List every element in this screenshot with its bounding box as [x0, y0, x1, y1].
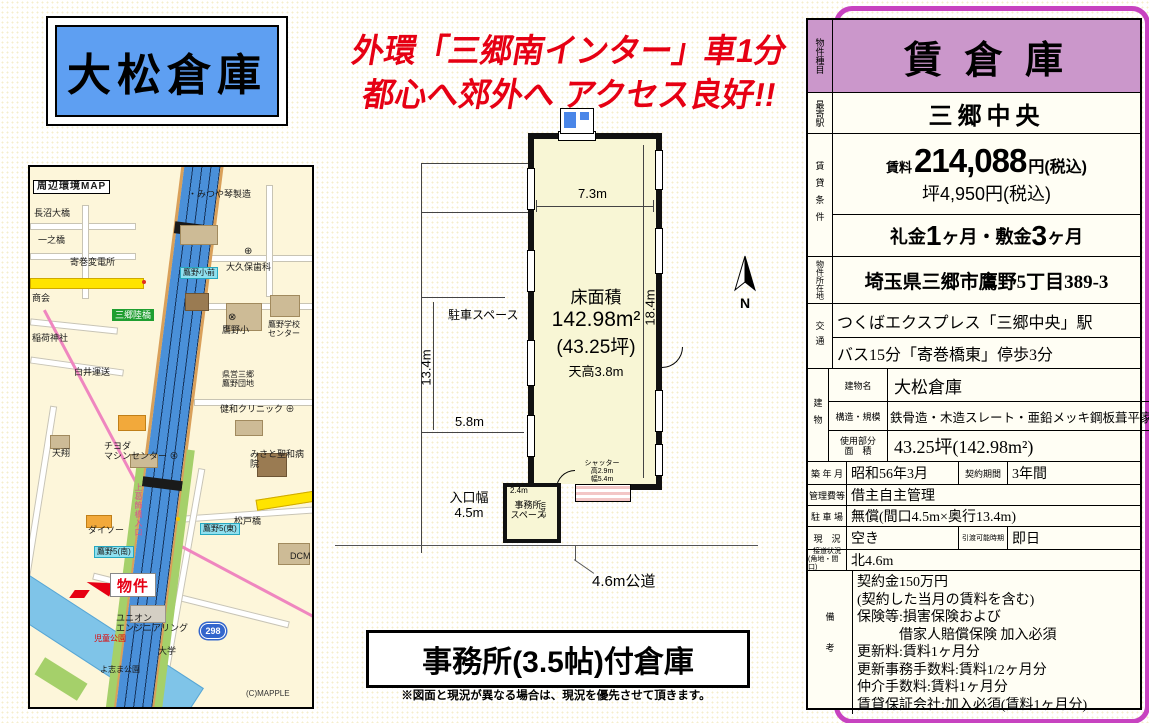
page-title: 大松倉庫 — [67, 39, 267, 103]
site-line — [421, 297, 505, 298]
row-parking: 駐 車 場 無償(間口4.5m×奥行13.4m) — [808, 506, 1140, 527]
rent-amount: 214,088 — [914, 142, 1026, 180]
type-label: 物件種目 — [814, 38, 827, 74]
fixture-blue — [580, 112, 589, 120]
map-label: 児童公園 — [94, 634, 126, 644]
status-value: 空き — [847, 527, 959, 549]
entrance-label-1: 入口幅 — [438, 490, 500, 505]
remarks-line: (契約した当月の賃料を含む) — [857, 592, 1138, 610]
map-label: 鷹野学校 センター — [268, 320, 300, 338]
access-content: つくばエクスプレス「三郷中央」駅 バス15分「寄巻橋東」停歩3分 — [833, 304, 1140, 368]
map-label: DCM — [290, 551, 311, 561]
row-built: 築 年 月 昭和56年3月 契約期間 3年間 — [808, 462, 1140, 485]
dim-left-label: 13.4m — [419, 349, 434, 385]
floor-area-m2: 142.98m² — [540, 308, 652, 332]
address-value: 埼玉県三郷市鷹野5丁目389-3 — [833, 257, 1140, 303]
floor-area-value: 43.25坪(142.98m²) — [888, 433, 1033, 459]
map-label: 県営三郷 鷹野団地 — [222, 370, 254, 388]
remarks-line: 更新事務手数料:賃料1/2ヶ月分 — [857, 662, 1138, 680]
station-value: 三郷中央 — [833, 93, 1140, 133]
map-label: 一之橋 — [38, 235, 65, 245]
rent-suffix: 円(税込) — [1028, 153, 1087, 177]
details-table: 物件種目 賃 倉 庫 最寄駅 三郷中央 賃貸条件 賃料 214,088 円(税込… — [806, 18, 1142, 710]
terms-content: 賃料 214,088 円(税込) 坪4,950円(税込) 礼金 1 ヶ月・敷金 … — [833, 134, 1140, 256]
remarks-label-cell: 備考 — [808, 571, 853, 714]
row-access: 交通 つくばエクスプレス「三郷中央」駅 バス15分「寄巻橋東」停歩3分 — [808, 304, 1140, 369]
map-road — [28, 406, 57, 587]
remarks-line: 契約金150万円 — [857, 574, 1138, 592]
shutter-note: シャッター 高2.9m 幅5.4m — [570, 460, 634, 484]
disclaimer: ※図面と現況が異なる場合は、現況を優先させて頂きます。 — [356, 687, 756, 703]
wall-bottom — [629, 484, 662, 490]
map-yellow-road — [30, 278, 144, 289]
map-label: 商会 — [32, 293, 50, 303]
floor-area-row: 使用部分 面 積 43.25坪(142.98m²) — [829, 431, 1149, 461]
map-label: 大久保歯科 — [226, 262, 271, 272]
area-map: ・みつや琴製造長沼大橋一之橋寄巻変電所⊕大久保歯科鷹野小前商会三郷陸橋⊗鷹野小鷹… — [28, 165, 314, 709]
floor-area-label: 使用部分 面 積 — [829, 431, 888, 461]
window — [527, 250, 535, 292]
fee-part2: ヶ月・敷金 — [942, 223, 1032, 249]
floor-area-tsubo: (43.25坪) — [540, 332, 652, 359]
window — [655, 444, 663, 476]
dim-line-5-8 — [421, 432, 524, 433]
map-label: 三郷陸橋 — [112, 309, 154, 321]
window — [655, 228, 663, 274]
mgmt-value: 借主自主管理 — [847, 485, 1140, 505]
map-label: ユニオン エンジニアリング — [116, 613, 188, 633]
handover-value: 即日 — [1008, 527, 1140, 549]
headline-line1: 外環「三郷南インター」車1分 — [323, 24, 816, 72]
remarks-line: 仲介手数料:賃料1ヶ月分 — [857, 679, 1138, 697]
type-value: 賃 倉 庫 — [833, 20, 1140, 92]
bottom-title: 事務所(3.5帖)付倉庫 — [422, 637, 694, 681]
remarks-line: 借家人賠償保険 加入必須 — [857, 627, 1138, 645]
entrance-label-2: 4.5m — [438, 505, 500, 520]
shutter-label: シャッター — [570, 460, 634, 468]
frontage-label-2: (角地・間口) — [808, 556, 846, 572]
site-line — [421, 212, 528, 213]
route-298-shield: 298 — [200, 623, 226, 639]
map-building — [185, 293, 209, 311]
building-label-cell: 建物 — [808, 369, 829, 461]
parking-row-label: 駐 車 場 — [808, 506, 847, 526]
remarks-line: 更新料:賃料1ヶ月分 — [857, 644, 1138, 662]
flyer-page: 大松倉庫 外環「三郷南インター」車1分 都心へ郊外へ アクセス良好!! — [0, 0, 1149, 723]
office-dim: 2.4m — [510, 486, 528, 495]
floor-area-label-1: 使用部分 — [840, 436, 876, 446]
fee-num1: 1 — [926, 220, 942, 252]
term-value: 3年間 — [1008, 462, 1140, 484]
remarks-content: 契約金150万円 (契約した当月の賃料を含む) 保険等:損害保険および 借家人賠… — [853, 571, 1140, 714]
address-label: 物件所在地 — [815, 260, 826, 300]
built-label: 築 年 月 — [808, 462, 847, 484]
road-label: 4.6m公道 — [592, 570, 655, 591]
map-label: 鷹野5(南) — [94, 546, 134, 558]
frontage-value: 北4.6m — [847, 550, 1140, 570]
compass: N — [724, 254, 766, 323]
map-label: 白井運送 — [74, 367, 110, 377]
map-label: 鷹野小前 — [180, 267, 218, 279]
terms-label: 賃貸条件 — [814, 161, 827, 229]
dim-tick — [653, 200, 654, 212]
access-line1: つくばエクスプレス「三郷中央」駅 — [833, 304, 1140, 338]
fee-part3: ヶ月 — [1047, 223, 1083, 249]
row-mgmt: 管理費等 借主自主管理 — [808, 485, 1140, 506]
building-content: 建物名 大松倉庫 構造・規模 鉄骨造・木造スレート・亜鉛メッキ鋼板葺平家建 使用… — [829, 369, 1149, 461]
map-label: みさと聖和病院 — [250, 449, 312, 469]
remarks-label: 備考 — [824, 612, 837, 674]
shutter-width: 幅5.4m — [570, 476, 634, 484]
terms-label-cell: 賃貸条件 — [808, 134, 833, 256]
fee-num2: 3 — [1032, 220, 1048, 252]
property-label-box: 物件 — [110, 573, 156, 597]
mgmt-label: 管理費等 — [808, 485, 847, 505]
row-station: 最寄駅 三郷中央 — [808, 93, 1140, 134]
building-name-value: 大松倉庫 — [888, 373, 962, 398]
fees-cell: 礼金 1 ヶ月・敷金 3 ヶ月 — [833, 215, 1140, 256]
bottom-title-box: 事務所(3.5帖)付倉庫 — [366, 630, 750, 688]
building-label: 建物 — [812, 398, 825, 432]
window — [655, 150, 663, 190]
rent-tsubo: 坪4,950円(税込) — [833, 180, 1140, 206]
map-label: ・みつや琴製造 — [188, 189, 251, 199]
dim-top-label: 7.3m — [578, 186, 607, 201]
floor-area-block: 床面積 142.98m² (43.25坪) 天高3.8m — [540, 283, 652, 380]
structure-label: 構造・規模 — [829, 402, 888, 430]
ceiling-height: 天高3.8m — [540, 361, 652, 380]
map-building — [118, 415, 146, 431]
access-label: 交通 — [814, 321, 827, 351]
site-line — [421, 163, 528, 164]
row-type: 物件種目 賃 倉 庫 — [808, 20, 1140, 93]
frontage-label-1: 接道状況 — [813, 548, 841, 556]
window — [527, 168, 535, 210]
map-label: (C)MAPPLE — [246, 689, 290, 699]
status-label: 現 況 — [808, 527, 847, 549]
dim-tick — [536, 200, 537, 212]
property-marker — [69, 590, 90, 598]
map-label: 鷹野5(東) — [200, 523, 240, 535]
map-label: ダイソー — [88, 525, 124, 535]
window — [527, 340, 535, 386]
access-label-cell: 交通 — [808, 304, 833, 368]
map-building — [270, 295, 300, 317]
parking-label: 駐車スペース — [448, 306, 519, 323]
remarks-line: 保険等:損害保険および — [857, 609, 1138, 627]
row-address: 物件所在地 埼玉県三郷市鷹野5丁目389-3 — [808, 257, 1140, 304]
map-label: よ志ま公園 — [100, 665, 140, 674]
property-label: 物件 — [117, 575, 149, 596]
built-value: 昭和56年3月 — [847, 462, 959, 484]
fixture-box — [560, 108, 594, 134]
building-name-label: 建物名 — [829, 369, 888, 401]
frontage-label: 接道状況 (角地・間口) — [808, 550, 847, 570]
map-label: ⊗ — [228, 313, 236, 323]
type-label-cell: 物件種目 — [808, 20, 833, 92]
term-label: 契約期間 — [959, 462, 1008, 484]
map-label: 健和クリニック ⊕ — [220, 404, 295, 414]
floor-area-label-2: 面 積 — [844, 446, 871, 456]
map-label: 寄巻変電所 — [70, 257, 115, 267]
map-label: 上葛飾橋入口 — [133, 483, 143, 537]
structure-row: 構造・規模 鉄骨造・木造スレート・亜鉛メッキ鋼板葺平家建 — [829, 402, 1149, 431]
map-building — [180, 225, 218, 245]
row-frontage: 接道状況 (角地・間口) 北4.6m — [808, 550, 1140, 571]
map-signal — [142, 280, 146, 284]
title-box-inner: 大松倉庫 — [55, 25, 279, 117]
handover-label: 引渡可能時期 — [959, 527, 1008, 549]
fixture-blue — [564, 112, 576, 128]
access-line2: バス15分「寄巻橋東」停歩3分 — [833, 338, 1140, 368]
shutter-height: 高2.9m — [570, 468, 634, 476]
fee-part1: 礼金 — [890, 223, 926, 249]
road-line — [335, 545, 758, 546]
row-building: 建物 建物名 大松倉庫 構造・規模 鉄骨造・木造スレート・亜鉛メッキ鋼板葺平家建… — [808, 369, 1140, 462]
map-label: 大学 — [158, 646, 176, 656]
map-corner-label: 周辺環境MAP — [33, 180, 110, 194]
road-tick — [575, 545, 576, 561]
map-green-area — [34, 657, 87, 700]
entrance-label: 入口幅 4.5m — [438, 490, 500, 520]
map-building — [50, 435, 70, 449]
door-arc — [662, 347, 683, 368]
building-name-row: 建物名 大松倉庫 — [829, 369, 1149, 402]
map-label: 天翔 — [52, 448, 70, 458]
compass-n: N — [740, 295, 750, 311]
window — [655, 390, 663, 432]
shutter — [575, 484, 631, 502]
structure-value: 鉄骨造・木造スレート・亜鉛メッキ鋼板葺平家建 — [888, 407, 1149, 426]
map-road — [196, 255, 314, 262]
row-status: 現 況 空き 引渡可能時期 即日 — [808, 527, 1140, 550]
rent-line: 賃料 214,088 円(税込) — [833, 142, 1140, 180]
window — [527, 415, 535, 457]
map-label: 稲荷神社 — [32, 333, 68, 343]
parking-row-value: 無償(間口4.5m×奥行13.4m) — [847, 506, 1140, 526]
title-box: 大松倉庫 — [46, 16, 288, 126]
map-building — [235, 420, 263, 436]
map-label: チヨダ マシンセンター ⊗ — [104, 441, 179, 461]
address-label-cell: 物件所在地 — [808, 257, 833, 303]
map-label: 長沼大橋 — [34, 208, 70, 218]
remarks-line: 賃貸保証会社:加入必須(賃料1ヶ月分) — [857, 697, 1138, 715]
rent-cell: 賃料 214,088 円(税込) 坪4,950円(税込) — [833, 134, 1140, 215]
dim-line-top — [536, 206, 654, 207]
office-dim-side: 2.4m — [540, 502, 547, 518]
map-signal — [176, 517, 180, 521]
map-label: ⊕ — [244, 247, 252, 257]
row-terms: 賃貸条件 賃料 214,088 円(税込) 坪4,950円(税込) 礼金 1 ヶ… — [808, 134, 1140, 257]
station-label: 最寄駅 — [814, 100, 827, 127]
station-label-cell: 最寄駅 — [808, 93, 833, 133]
map-road — [266, 185, 273, 297]
row-remarks: 備考 契約金150万円 (契約した当月の賃料を含む) 保険等:損害保険および 借… — [808, 571, 1140, 714]
map-label: 鷹野小 — [222, 325, 249, 335]
floor-area-title: 床面積 — [540, 283, 652, 308]
rent-prefix: 賃料 — [886, 157, 912, 176]
map-bridge — [142, 476, 183, 491]
dim-width-label: 5.8m — [455, 414, 484, 429]
